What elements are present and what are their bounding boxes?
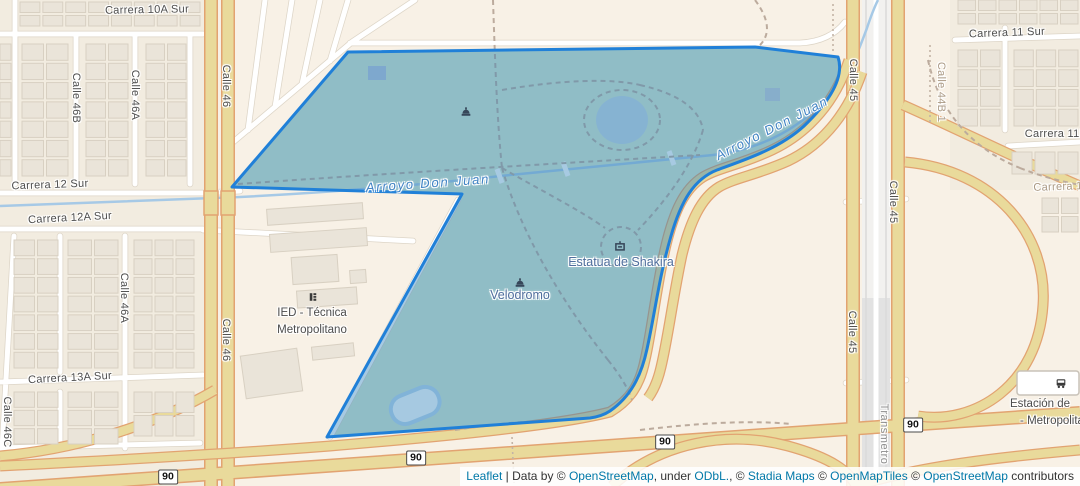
attribution-text-data-by: | Data by © (502, 469, 569, 483)
transmetro-corridor (862, 0, 890, 486)
attribution-link-openstreetmap[interactable]: OpenStreetMap (923, 469, 1008, 483)
attribution-text-: © (815, 469, 831, 483)
attribution-text-under: , under (654, 469, 695, 483)
attribution-text-contributors: contributors (1008, 469, 1074, 483)
map-tiles (0, 0, 1080, 486)
attribution-bar: Leaflet | Data by © OpenStreetMap, under… (460, 467, 1080, 486)
map-canvas[interactable]: Carrera 10A SurCarrera 12 SurCarrera 12A… (0, 0, 1080, 486)
attribution-link-odbl[interactable]: ODbL. (694, 469, 729, 483)
attribution-link-openmaptiles[interactable]: OpenMapTiles (830, 469, 908, 483)
attribution-text-: , © (729, 469, 748, 483)
attribution-link-leaflet[interactable]: Leaflet (466, 469, 502, 483)
attribution-link-stadia-maps[interactable]: Stadia Maps (748, 469, 815, 483)
station-building (1017, 371, 1079, 395)
attribution-text-: © (908, 469, 924, 483)
attribution-link-openstreetmap[interactable]: OpenStreetMap (569, 469, 654, 483)
